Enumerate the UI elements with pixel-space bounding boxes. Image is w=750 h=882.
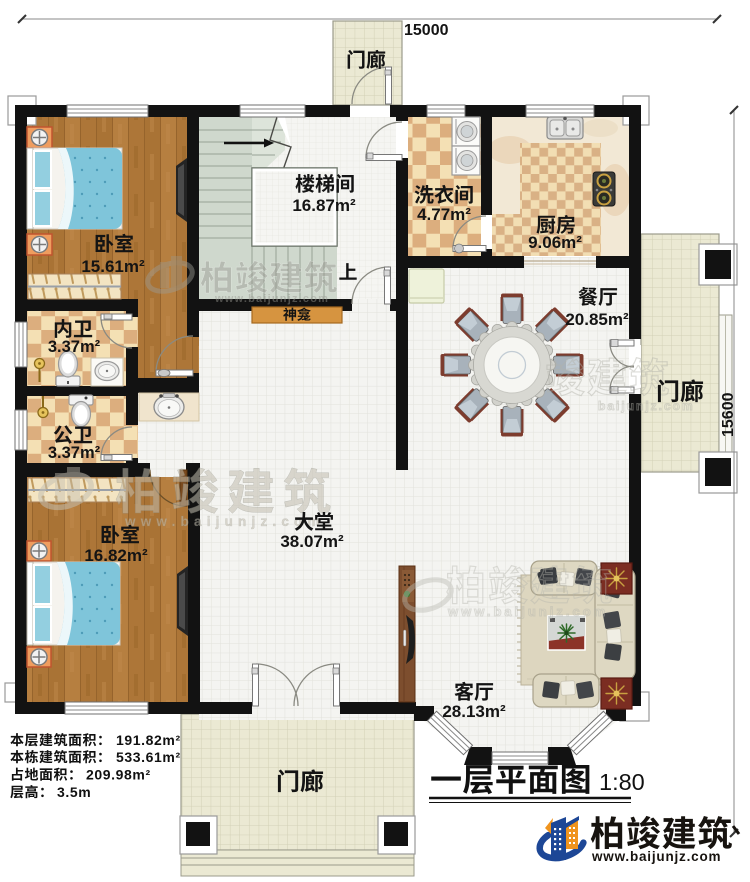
svg-text:3.37m²: 3.37m² [48, 338, 101, 356]
svg-text:www.baijunjz.com: www.baijunjz.com [124, 514, 325, 529]
svg-text:191.82m²: 191.82m² [116, 732, 181, 748]
svg-text:www.baijunjz.com: www.baijunjz.com [591, 849, 721, 864]
svg-text:533.61m²: 533.61m² [116, 749, 181, 765]
svg-text:www.baijunjz.com: www.baijunjz.com [214, 293, 329, 305]
svg-text:3.5m: 3.5m [57, 784, 91, 800]
svg-text:4.77m²: 4.77m² [417, 205, 471, 224]
svg-text:15600: 15600 [720, 392, 737, 437]
svg-text:15000: 15000 [404, 22, 449, 39]
svg-text:15.61m²: 15.61m² [81, 257, 145, 276]
svg-text:16.87m²: 16.87m² [292, 196, 356, 215]
svg-text:www.baijunjz.com: www.baijunjz.com [447, 604, 608, 619]
svg-text:38.07m²: 38.07m² [280, 532, 344, 551]
svg-text:20.85m²: 20.85m² [565, 310, 629, 329]
svg-text:9.06m²: 9.06m² [528, 233, 582, 252]
svg-text:3.37m²: 3.37m² [48, 444, 101, 462]
svg-text:28.13m²: 28.13m² [442, 702, 506, 721]
svg-text:16.82m²: 16.82m² [84, 546, 148, 565]
svg-text:209.98m²: 209.98m² [86, 767, 151, 783]
svg-text:1:80: 1:80 [599, 769, 645, 795]
svg-text:baijunjz.com: baijunjz.com [598, 399, 695, 413]
